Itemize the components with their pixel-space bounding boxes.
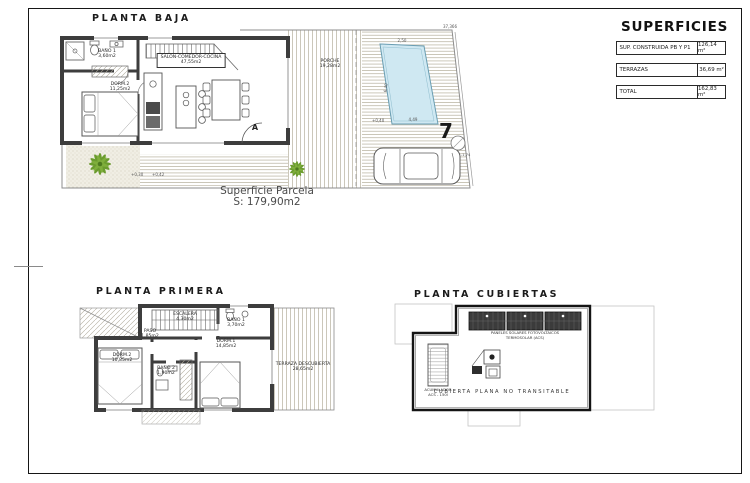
entry-roof-below <box>80 308 140 338</box>
lower-porch-outline <box>142 410 200 424</box>
corner-dim: -1,74 <box>461 153 471 157</box>
planta-primera-title: PLANTA PRIMERA <box>96 286 226 297</box>
left-margin-tick <box>14 266 43 267</box>
room-label-dorm1: DORM.1 14,85m2 <box>216 339 237 350</box>
room-label-bano1: BAÑO 1 3,60m2 <box>98 49 116 60</box>
planta-cubiertas-title: PLANTA CUBIERTAS <box>414 289 559 300</box>
bed-dorm1 <box>200 362 240 408</box>
superficies-title: SUPERFICIES <box>621 19 728 35</box>
level-mark: +0,42 <box>152 172 165 177</box>
wardrobe <box>180 360 192 400</box>
manhole <box>451 136 465 150</box>
room-label-bano1-p1: BAÑO 1 3,70m2 <box>227 318 245 329</box>
room-label-bano2: BAÑO 2 1,90m2 <box>157 366 175 377</box>
acs-accumulator <box>428 344 448 386</box>
flat-roof-note: CUBIERTA PLANA NO TRANSITABLE <box>434 389 571 395</box>
wardrobe <box>92 66 128 77</box>
planta-cubiertas-drawing <box>392 300 662 430</box>
superficies-row: TERRAZAS 36,69 m² <box>616 63 726 77</box>
terrace-decking <box>272 308 334 410</box>
plot-number: 7 <box>439 119 453 143</box>
room-label-dorm2: DORM.2 11,25m2 <box>110 82 131 93</box>
section-marker-a: A <box>252 123 259 132</box>
superficies-row: SUP. CONSTRUIDA PB Y P1 126,14 m² <box>616 41 726 55</box>
car-top-view <box>374 148 460 184</box>
room-label-terraza: TERRAZA DESCUBIERTA 28,65m2 <box>276 362 331 373</box>
room-label-salon: SALON-COMEDOR-COCINA 47,55m2 <box>157 53 226 68</box>
room-label-paso: PASO 1,85m2 <box>141 329 159 340</box>
pool-bottom-dim: 4,49 <box>409 117 418 122</box>
parcel-area-label: Superficie Parcela S: 179,90m2 <box>196 186 338 209</box>
room-label-escalera: ESCALERA 4,30m2 <box>173 312 197 323</box>
pool-width-dim: 2,50 <box>398 38 407 43</box>
room-label-dorm2-p1: DORM.2 10,85m2 <box>112 353 133 364</box>
survey-dim: 37,366 <box>443 24 457 29</box>
kitchen-counter <box>144 73 162 130</box>
sink <box>110 41 123 47</box>
superficies-row: TOTAL 162,83 m² <box>616 85 726 99</box>
rear-deck-band <box>140 154 288 186</box>
level-mark: +0,40 <box>372 118 385 123</box>
room-label-porche: PORCHE 19,28m2 <box>320 59 341 70</box>
shower <box>66 42 84 60</box>
bed-dorm2 <box>82 92 138 136</box>
drawing-sheet: PLANTA BAJA <box>0 0 750 483</box>
solar-panels-caption: PANELES SOLARES FOTOVOLTAICOS TERMOSOLAR… <box>491 331 559 340</box>
dining-table <box>203 80 249 120</box>
level-mark: +0,30 <box>131 172 144 177</box>
solar-panels <box>469 312 581 330</box>
